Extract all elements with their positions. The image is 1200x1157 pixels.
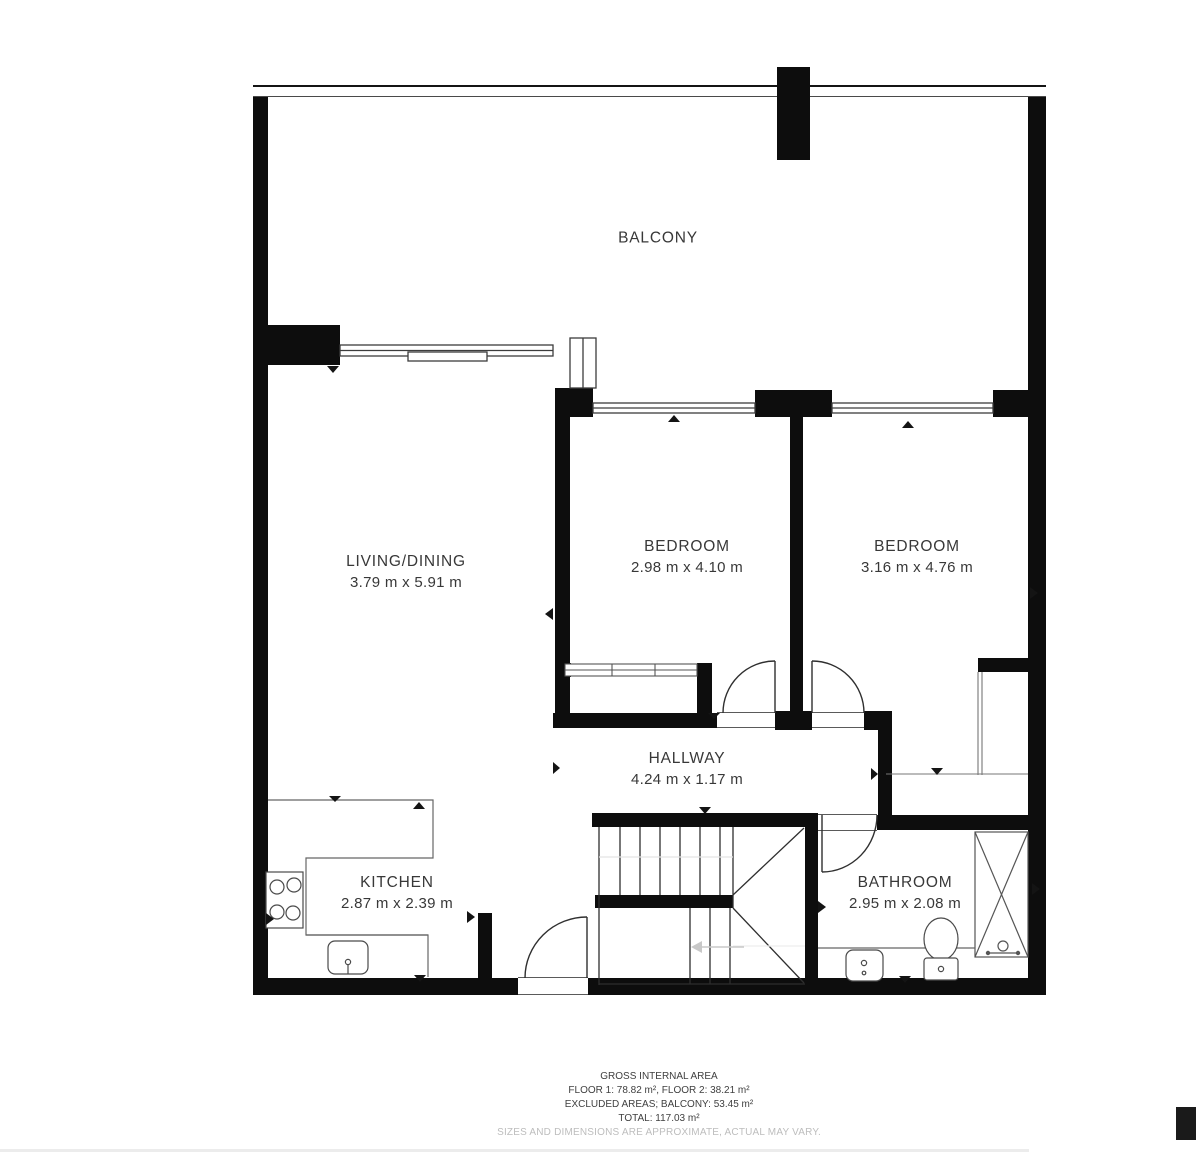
room-dims-bathroom: 2.95 m x 2.08 m [849,893,961,914]
label-bedroom1: BEDROOM 2.98 m x 4.10 m [631,536,743,578]
room-name-hallway: HALLWAY [631,748,743,769]
closet-bedroom2 [886,672,1028,775]
room-dims-kitchen: 2.87 m x 2.39 m [341,893,453,914]
room-dims-bedroom1: 2.98 m x 4.10 m [631,557,743,578]
balcony-door-window [570,338,596,388]
label-balcony: BALCONY [618,228,698,249]
room-dims-living: 3.79 m x 5.91 m [346,572,466,593]
area-summary-floors: FLOOR 1: 78.82 m², FLOOR 2: 38.21 m² [497,1084,821,1098]
door-bedroom1 [723,661,775,713]
staircase [599,827,805,985]
window-bedroom1 [593,403,755,413]
door-entry [525,917,587,978]
label-hallway: HALLWAY 4.24 m x 1.17 m [631,748,743,790]
room-name-bathroom: BATHROOM [849,872,961,893]
label-living: LIVING/DINING 3.79 m x 5.91 m [346,551,466,593]
room-name-balcony: BALCONY [618,228,698,249]
room-name-kitchen: KITCHEN [341,872,453,893]
bathroom-sink-icon [846,950,883,981]
label-kitchen: KITCHEN 2.87 m x 2.39 m [341,872,453,914]
label-bedroom2: BEDROOM 3.16 m x 4.76 m [861,536,973,578]
door-bathroom [822,815,877,872]
stairs-direction-arrow [691,941,744,953]
plan-detail-layer [0,0,1200,1157]
shower-icon [975,832,1028,957]
area-summary-disclaimer: SIZES AND DIMENSIONS ARE APPROXIMATE, AC… [497,1126,821,1140]
room-name-bedroom2: BEDROOM [861,536,973,557]
window-living [340,345,553,361]
door-bedroom2 [812,661,864,713]
area-summary-excluded: EXCLUDED AREAS; BALCONY: 53.45 m² [497,1098,821,1112]
label-bathroom: BATHROOM 2.95 m x 2.08 m [849,872,961,914]
area-summary: GROSS INTERNAL AREA FLOOR 1: 78.82 m², F… [497,1070,821,1140]
floor-plan-canvas: BALCONY LIVING/DINING 3.79 m x 5.91 m BE… [0,0,1200,1157]
toilet-icon [924,918,958,980]
wardrobe-bedroom1 [565,664,697,676]
area-summary-total: TOTAL: 117.03 m² [497,1112,821,1126]
area-summary-title: GROSS INTERNAL AREA [497,1070,821,1084]
window-bedroom2 [832,403,993,413]
kitchen-sink-icon [328,941,368,974]
room-dims-hallway: 4.24 m x 1.17 m [631,769,743,790]
room-dims-bedroom2: 3.16 m x 4.76 m [861,557,973,578]
room-name-living: LIVING/DINING [346,551,466,572]
room-name-bedroom1: BEDROOM [631,536,743,557]
